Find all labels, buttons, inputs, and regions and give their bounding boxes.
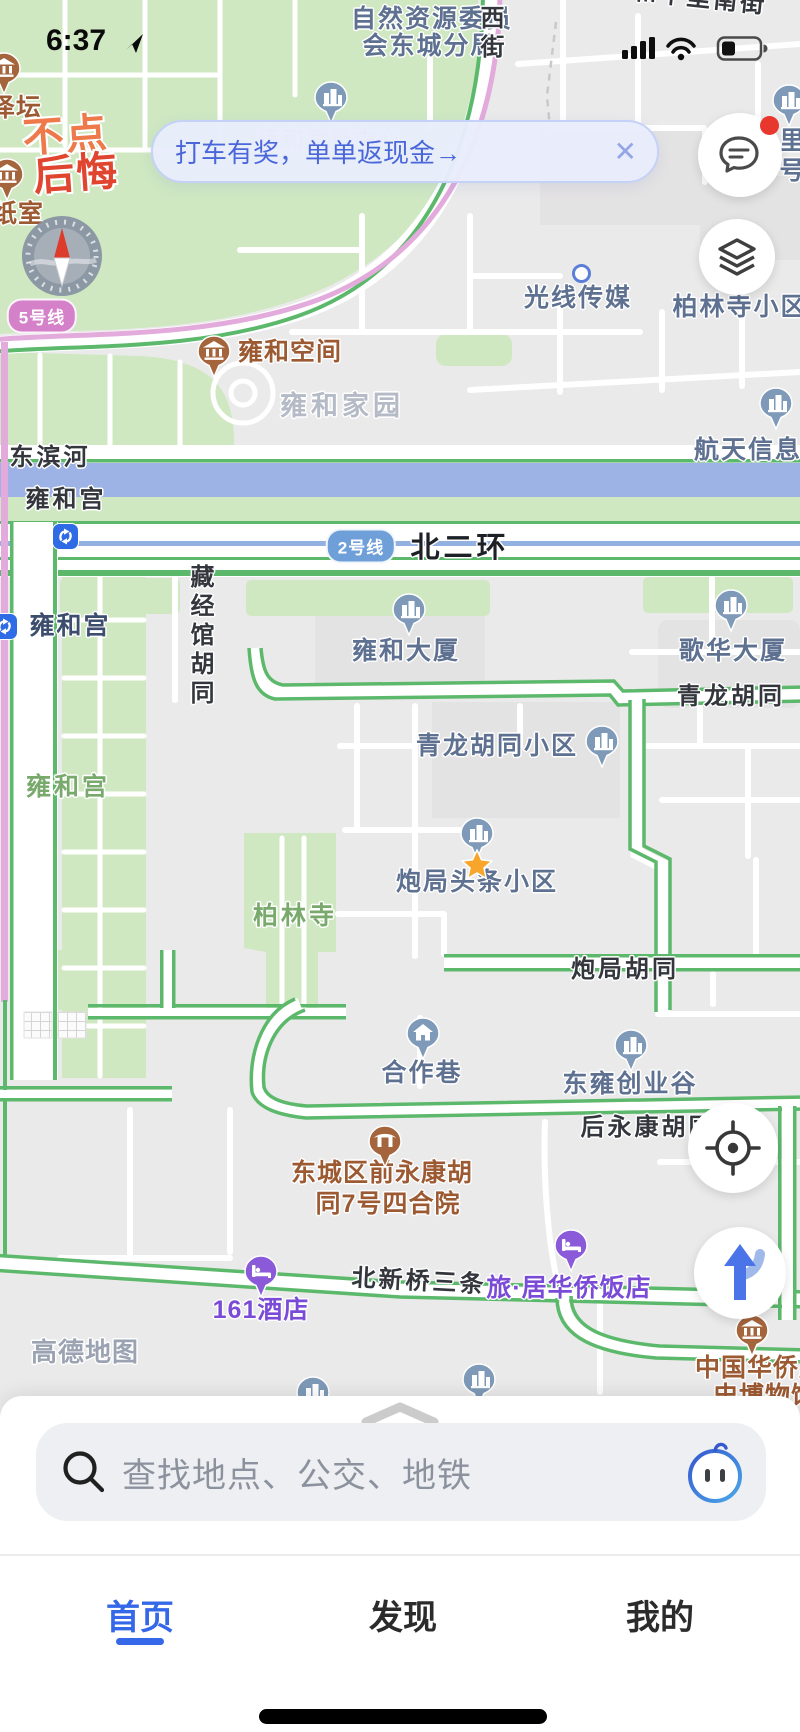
tab-bar: 首页 发现 我的 [0, 1572, 800, 1652]
ad-sticker[interactable]: 不点 后悔 [21, 113, 120, 197]
compass-button[interactable] [22, 216, 102, 296]
clock: 6:37 [46, 24, 106, 58]
promo-banner[interactable]: 打车有奖，单单返现金→ ✕ [151, 120, 659, 183]
route-navigation-button[interactable] [694, 1227, 786, 1319]
active-tab-underline [116, 1638, 164, 1645]
locate-me-button[interactable] [688, 1103, 778, 1193]
location-arrow-icon [122, 31, 146, 55]
magnifier-icon [60, 1448, 108, 1496]
signal-icon [622, 37, 655, 59]
home-indicator[interactable] [259, 1709, 547, 1724]
layers-icon [714, 236, 760, 278]
amap-home-screen: 自然资源委员会东城分局西街和平里南街里号泽坛纸室雍和宫壹中心柏林寺小区光线传媒雍… [0, 0, 800, 1732]
tab-discover[interactable]: 发现 [369, 1590, 437, 1639]
battery-icon [718, 38, 768, 60]
assistant-mascot-icon[interactable] [684, 1439, 746, 1505]
search-placeholder: 查找地点、公交、地铁 [122, 1448, 684, 1497]
tab-home[interactable]: 首页 [106, 1590, 174, 1639]
route-arrow-icon [712, 1242, 768, 1304]
notification-badge [760, 116, 779, 135]
tab-mine[interactable]: 我的 [626, 1590, 694, 1639]
divider [0, 1554, 800, 1556]
map-layers-button[interactable] [699, 219, 775, 295]
crosshair-locate-icon [705, 1120, 761, 1176]
bottom-sheet: 查找地点、公交、地铁 首页 发现 我的 [0, 1396, 800, 1732]
wifi-icon [668, 39, 694, 52]
wifi-dot [678, 54, 684, 60]
status-bar: 6:37 [0, 0, 800, 64]
ad-line2: 后悔 [32, 152, 121, 197]
close-icon[interactable]: ✕ [614, 135, 637, 168]
promo-banner-text: 打车有奖，单单返现金→ [175, 133, 614, 170]
messages-button[interactable] [698, 113, 782, 197]
status-icons [622, 36, 774, 62]
search-input[interactable]: 查找地点、公交、地铁 [36, 1423, 766, 1521]
chat-bubble-icon [718, 135, 762, 175]
